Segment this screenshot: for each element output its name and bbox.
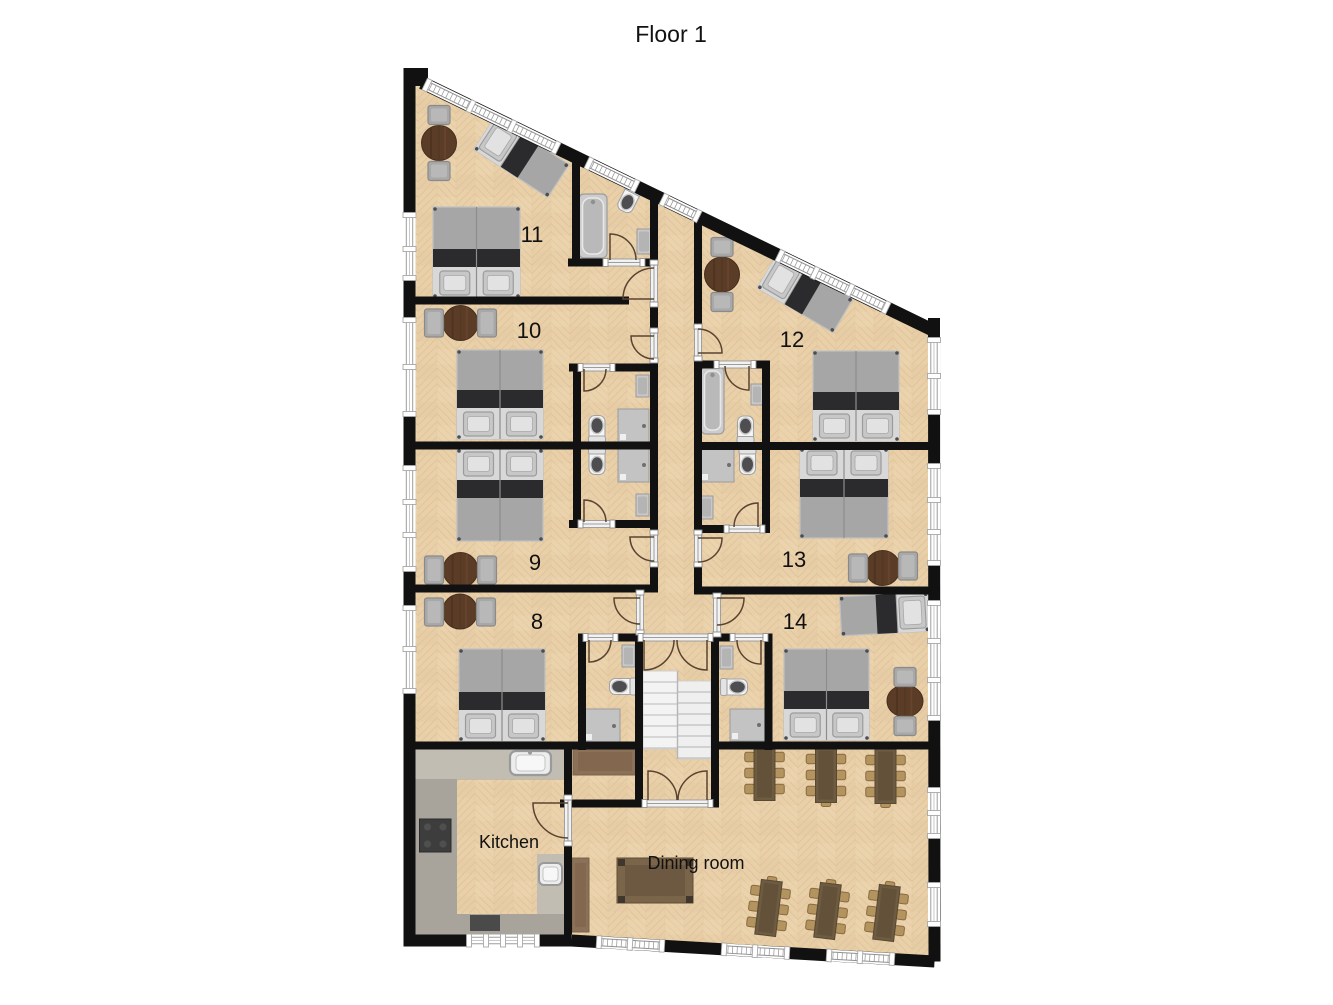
svg-text:13: 13 [782, 547, 806, 572]
svg-text:11: 11 [521, 222, 544, 247]
svg-text:8: 8 [531, 609, 543, 634]
svg-text:10: 10 [517, 318, 541, 343]
svg-text:Dining room: Dining room [647, 853, 744, 873]
svg-text:Kitchen: Kitchen [479, 832, 539, 852]
svg-text:12: 12 [780, 327, 804, 352]
svg-text:9: 9 [529, 550, 541, 575]
svg-text:Floor 1: Floor 1 [635, 21, 707, 47]
svg-text:14: 14 [783, 609, 807, 634]
